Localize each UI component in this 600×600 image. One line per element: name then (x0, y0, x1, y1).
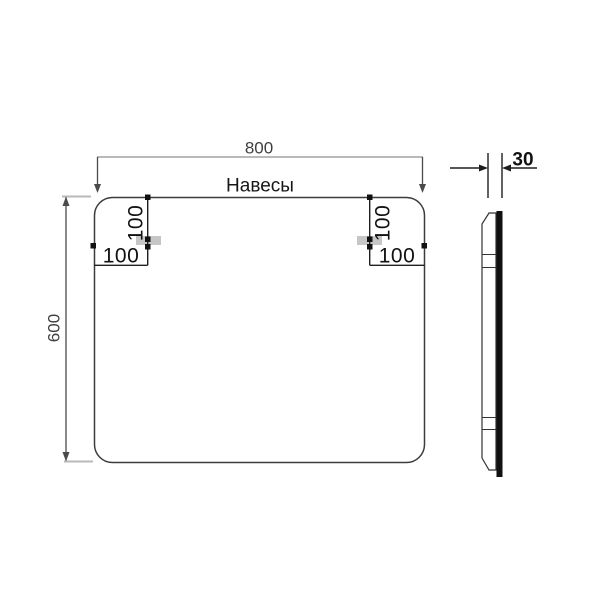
width-dim-left-arrowhead-icon (94, 184, 101, 193)
hanger-right-offset-top-label: 100 (373, 205, 394, 242)
thickness-dim-right-arrowhead-icon (502, 165, 511, 172)
hanger-right-offset-side-label: 100 (379, 246, 416, 267)
side-view (482, 211, 503, 477)
drawing-title-hangers: Навесы (226, 177, 294, 196)
height-dim-bottom-arrowhead-icon (63, 452, 70, 462)
hanger-left-offset-side-label: 100 (103, 246, 140, 267)
height-dimension (62, 197, 93, 462)
width-dim-label: 800 (245, 140, 273, 157)
height-dim-top-arrowhead-icon (63, 197, 70, 207)
drawing-linework (0, 0, 600, 600)
technical-drawing-mirror: 800 600 Навесы 100 100 100 100 30 (0, 0, 600, 600)
side-view-backing-outline (482, 213, 496, 470)
height-dim-label: 600 (46, 314, 63, 342)
hanger-left-offset-top-label: 100 (126, 205, 147, 242)
width-dim-right-arrowhead-icon (419, 184, 426, 193)
thickness-dim-label: 30 (512, 151, 533, 170)
thickness-dim-left-arrowhead-icon (479, 165, 488, 172)
side-view-glass-edge (497, 211, 503, 477)
